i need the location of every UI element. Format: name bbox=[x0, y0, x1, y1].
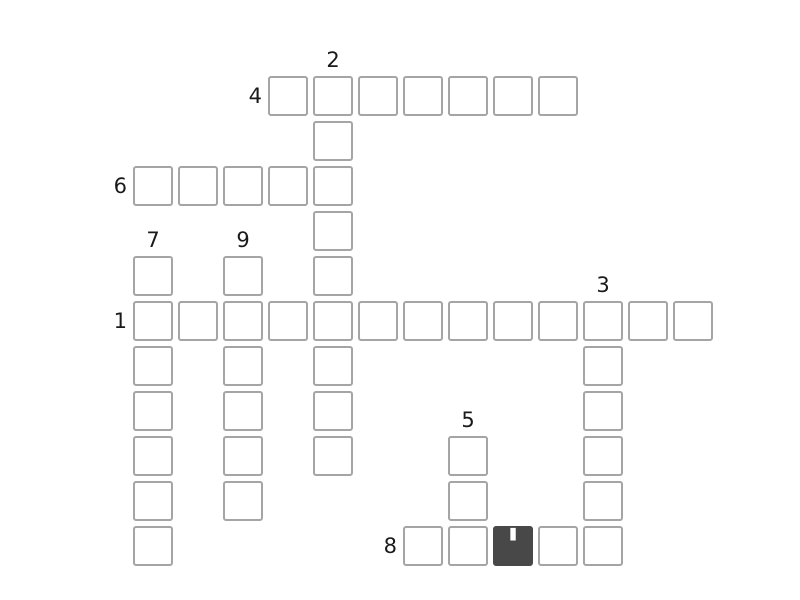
crossword-cell-c9-r0[interactable] bbox=[538, 76, 578, 116]
crossword-cell-c4-r3[interactable] bbox=[313, 211, 353, 251]
crossword-cell-c10-r7[interactable] bbox=[583, 391, 623, 431]
crossword-cell-c2-r2[interactable] bbox=[223, 166, 263, 206]
crossword-cell-c0-r4[interactable] bbox=[133, 256, 173, 296]
clue-number-4: 4 bbox=[216, 76, 262, 116]
clue-number-6: 6 bbox=[81, 166, 127, 206]
crossword-cell-c0-r6[interactable] bbox=[133, 346, 173, 386]
crossword-cell-c4-r7[interactable] bbox=[313, 391, 353, 431]
crossword-cell-c4-r1[interactable] bbox=[313, 121, 353, 161]
crossword-cell-c2-r9[interactable] bbox=[223, 481, 263, 521]
crossword-cell-c4-r8[interactable] bbox=[313, 436, 353, 476]
crossword-cell-c10-r6[interactable] bbox=[583, 346, 623, 386]
crossword-cell-c0-r5[interactable] bbox=[133, 301, 173, 341]
crossword-cell-c7-r9[interactable] bbox=[448, 481, 488, 521]
crossword-cell-c2-r8[interactable] bbox=[223, 436, 263, 476]
crossword-cell-c6-r5[interactable] bbox=[403, 301, 443, 341]
crossword-cell-c4-r2[interactable] bbox=[313, 166, 353, 206]
clue-number-1: 1 bbox=[81, 301, 127, 341]
clue-number-9: 9 bbox=[223, 227, 263, 254]
crossword-cell-c7-r5[interactable] bbox=[448, 301, 488, 341]
crossword-cell-c10-r10[interactable] bbox=[583, 526, 623, 566]
crossword-cell-c10-r8[interactable] bbox=[583, 436, 623, 476]
clue-number-7: 7 bbox=[133, 227, 173, 254]
crossword-cell-c2-r6[interactable] bbox=[223, 346, 263, 386]
crossword-canvas: 1234567'89 bbox=[0, 0, 800, 600]
crossword-cell-c5-r0[interactable] bbox=[358, 76, 398, 116]
crossword-cell-c3-r0[interactable] bbox=[268, 76, 308, 116]
crossword-cell-c4-r5[interactable] bbox=[313, 301, 353, 341]
clue-number-3: 3 bbox=[583, 272, 623, 299]
crossword-cell-c6-r0[interactable] bbox=[403, 76, 443, 116]
crossword-cell-prefilled-c8-r10: ' bbox=[493, 526, 533, 566]
crossword-cell-c4-r4[interactable] bbox=[313, 256, 353, 296]
crossword-cell-c0-r2[interactable] bbox=[133, 166, 173, 206]
crossword-cell-c6-r10[interactable] bbox=[403, 526, 443, 566]
crossword-cell-c2-r4[interactable] bbox=[223, 256, 263, 296]
clue-number-2: 2 bbox=[313, 47, 353, 74]
prefilled-character: ' bbox=[495, 523, 531, 569]
crossword-cell-c2-r7[interactable] bbox=[223, 391, 263, 431]
crossword-cell-c11-r5[interactable] bbox=[628, 301, 668, 341]
crossword-grid: 1234567'89 bbox=[0, 0, 800, 600]
crossword-cell-c12-r5[interactable] bbox=[673, 301, 713, 341]
crossword-cell-c10-r9[interactable] bbox=[583, 481, 623, 521]
crossword-cell-c2-r5[interactable] bbox=[223, 301, 263, 341]
crossword-cell-c1-r5[interactable] bbox=[178, 301, 218, 341]
crossword-cell-c0-r9[interactable] bbox=[133, 481, 173, 521]
crossword-cell-c8-r5[interactable] bbox=[493, 301, 533, 341]
crossword-cell-c9-r10[interactable] bbox=[538, 526, 578, 566]
crossword-cell-c0-r7[interactable] bbox=[133, 391, 173, 431]
clue-number-8: 8 bbox=[351, 526, 397, 566]
clue-number-5: 5 bbox=[448, 407, 488, 434]
crossword-cell-c4-r6[interactable] bbox=[313, 346, 353, 386]
crossword-cell-c7-r10[interactable] bbox=[448, 526, 488, 566]
crossword-cell-c4-r0[interactable] bbox=[313, 76, 353, 116]
crossword-cell-c7-r8[interactable] bbox=[448, 436, 488, 476]
crossword-cell-c1-r2[interactable] bbox=[178, 166, 218, 206]
crossword-cell-c9-r5[interactable] bbox=[538, 301, 578, 341]
crossword-cell-c0-r8[interactable] bbox=[133, 436, 173, 476]
crossword-cell-c3-r5[interactable] bbox=[268, 301, 308, 341]
crossword-cell-c10-r5[interactable] bbox=[583, 301, 623, 341]
crossword-cell-c7-r0[interactable] bbox=[448, 76, 488, 116]
crossword-cell-c5-r5[interactable] bbox=[358, 301, 398, 341]
crossword-cell-c0-r10[interactable] bbox=[133, 526, 173, 566]
crossword-cell-c3-r2[interactable] bbox=[268, 166, 308, 206]
crossword-cell-c8-r0[interactable] bbox=[493, 76, 533, 116]
